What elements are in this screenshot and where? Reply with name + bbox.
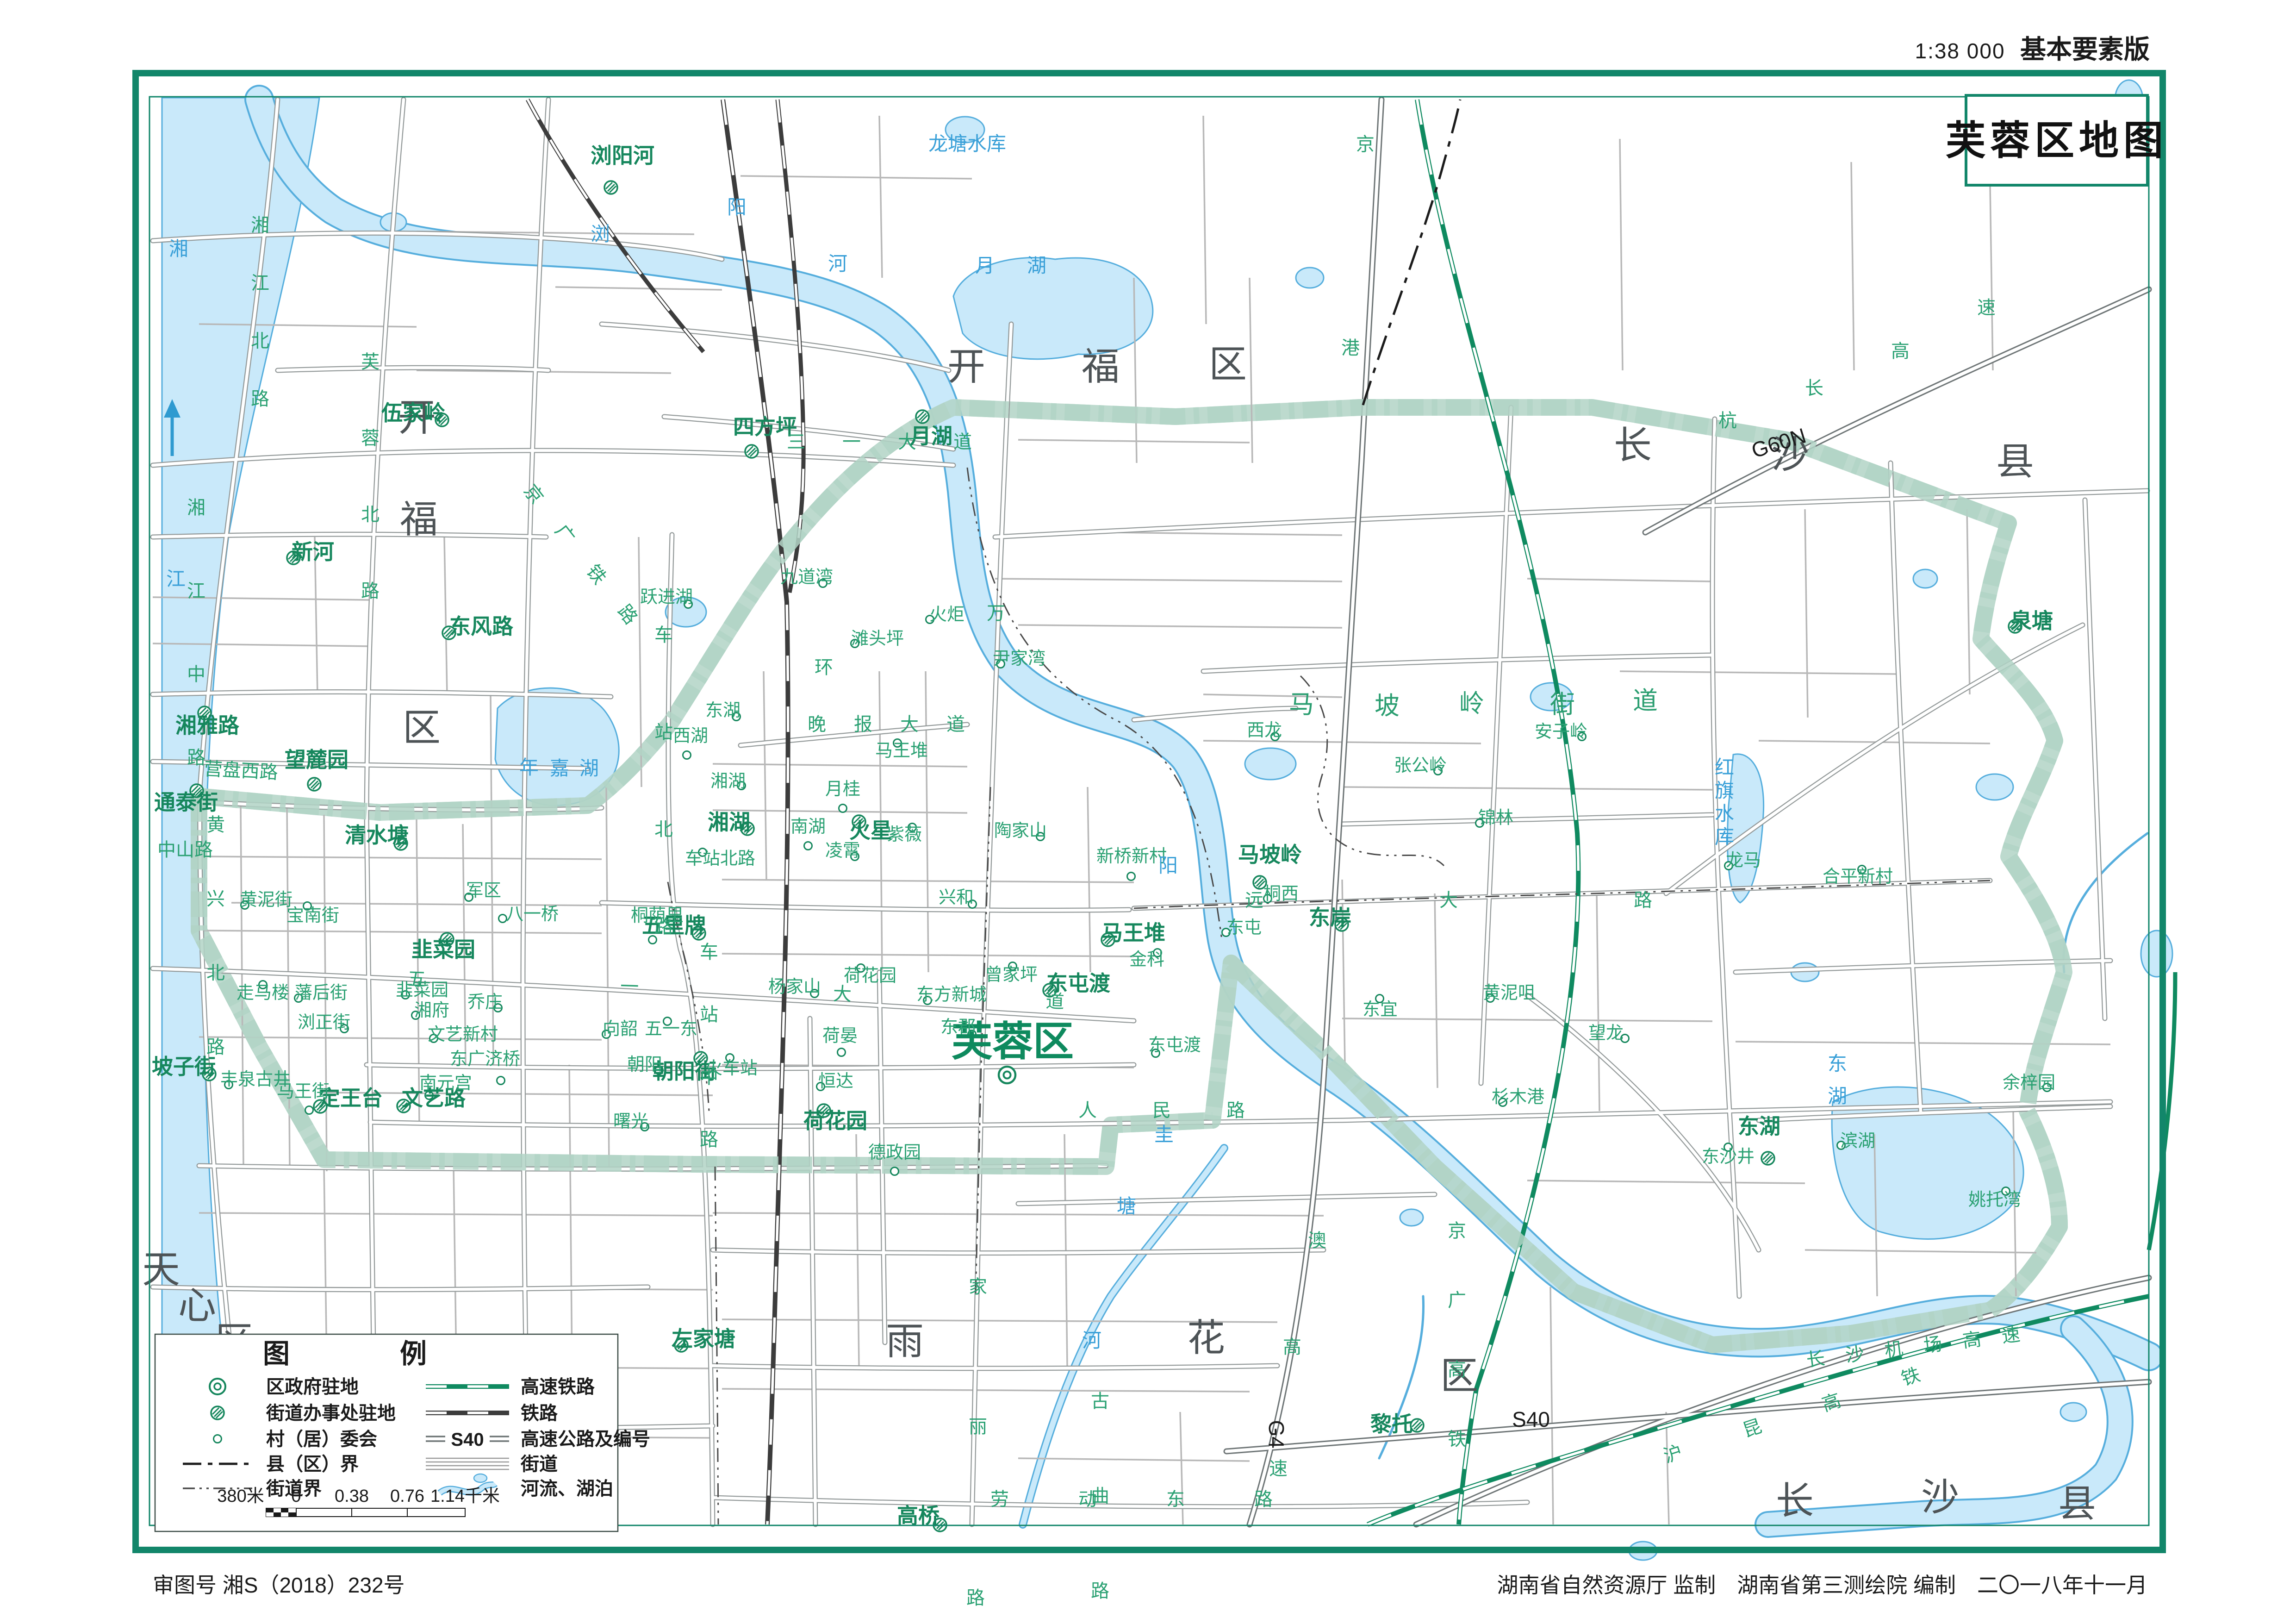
scalebar-label: 1.14千米 [430, 1487, 500, 1506]
map-label-vil: 西龙 [1247, 721, 1282, 740]
map-label-dist: 长 [1614, 425, 1654, 467]
map-label-dist: 开 [947, 346, 987, 388]
map-label-road: 五一大道 [407, 969, 1259, 1019]
map-label-water: 浏 [591, 223, 610, 245]
map-label-area: 岭 [1459, 690, 1484, 718]
map-label-dist: 花 [1187, 1317, 1227, 1359]
legend-item-label: 高速公路及编号 [521, 1429, 650, 1449]
map-label-dist: 县 [2058, 1483, 2098, 1525]
map-label-vil: 陶家山 [994, 821, 1047, 841]
map-label-vil: 军区 [466, 881, 501, 900]
map-label-road: 环 [815, 657, 833, 678]
village-committee-marker [839, 805, 847, 812]
map-label-vil: 马王街 [277, 1082, 330, 1101]
map-label-vil: 车站北路 [685, 849, 755, 868]
legend-item-label: 县（区）界 [266, 1454, 359, 1474]
map-label-road: 港 [1341, 338, 1360, 358]
map-label-vil: 八一桥 [506, 905, 559, 924]
map-title: 芙蓉区地图 [1946, 119, 2168, 163]
map-label-vil: 德政园 [868, 1143, 921, 1162]
district-government-marker [999, 1067, 1015, 1083]
map-label-sub: 荷花园 [803, 1109, 867, 1133]
map-label-vil: 向韶 [603, 1019, 638, 1039]
map-label-vil: 五一东 [645, 1019, 697, 1039]
map-label-vil: 浏正街 [298, 1013, 350, 1032]
map-label-vil: 湘府 [414, 1001, 449, 1020]
map-label-sub: 火星 [849, 818, 892, 843]
legend-item-label: 铁路 [521, 1403, 558, 1424]
map-label-road: 营盘西路 [204, 759, 279, 783]
village-committee-marker [1127, 873, 1135, 881]
title-box: 芙蓉区地图 [1946, 95, 2168, 185]
map-label-vil: 荷晏 [822, 1026, 858, 1046]
map-label-vil: 锦林 [1478, 808, 1513, 828]
map-label-dist: 福 [400, 499, 440, 541]
map-label-vil: 火炬 [929, 605, 964, 625]
map-label-vil: 黄泥咀 [1483, 983, 1536, 1003]
subdistrict-office-marker [604, 181, 617, 194]
village-committee-marker [804, 842, 812, 850]
map-label-road: 澳 [1308, 1230, 1326, 1251]
map-label-vil: 朝阳 [627, 1055, 662, 1074]
gov-seat-icon [210, 1379, 225, 1394]
map-label-vil: 东郡 [940, 1018, 976, 1037]
village-committee-icon [214, 1435, 222, 1443]
map-label-road: 长 [1805, 378, 1823, 399]
subdistrict-office-marker [308, 778, 321, 791]
legend-item-label: 村（居）委会 [266, 1429, 377, 1449]
map-label-water: 圭 [1154, 1124, 1174, 1145]
map-label-water: 湖 [1027, 255, 1046, 276]
legend-item-label: 区政府驻地 [266, 1377, 359, 1397]
map-label-sub: 左家塘 [672, 1327, 735, 1351]
map-label-road: 杭 [1718, 411, 1737, 431]
map-label-vil: 曾家坪 [985, 965, 1038, 985]
expressway-number: S40 [451, 1430, 484, 1450]
map-label-sub: 湘雅路 [175, 713, 240, 737]
map-label-sub: 马坡岭 [1238, 843, 1302, 867]
map-label-area: 马 [1289, 691, 1314, 718]
map-label-vil: 新桥新村 [1096, 847, 1167, 866]
map-label-area: 道 [1633, 687, 1658, 715]
edition-label: 基本要素版 [2020, 35, 2150, 64]
map-label-water: 东湖 [1828, 1053, 1847, 1107]
map-label-vil: 宝南街 [286, 906, 339, 925]
map-label-water: 阳 [1158, 855, 1178, 876]
map-label-vil: 安子岭 [1535, 722, 1587, 742]
map-label-vil: 荷花园 [844, 966, 896, 986]
legend-item-label: 河流、湖泊 [521, 1479, 613, 1499]
map-label-road: 速 [1269, 1459, 1288, 1479]
map-label-vil: 东湖 [705, 701, 740, 720]
scale-ratio: 1:38 000 [1915, 39, 2005, 63]
map-label-vil: 余梓园 [2003, 1073, 2055, 1093]
map-label-area: 坡 [1375, 692, 1400, 720]
map-label-road: 高 [1283, 1337, 1301, 1357]
map-label-road: 三一大道 [787, 432, 1009, 452]
subdistrict-office-marker [1761, 1152, 1774, 1165]
legend-item-label: 街道 [520, 1454, 558, 1474]
map-label-vil: 合平新村 [1823, 867, 1893, 887]
map-label-road: 晚报大道 [808, 714, 993, 735]
scalebar-label: 0 [291, 1487, 301, 1506]
map-label-vil: 张公岭 [1394, 756, 1447, 775]
map-label-sub: 新河 [292, 540, 334, 564]
map-label-hwy: G4 [1264, 1420, 1288, 1448]
map-label-sub: 通泰街 [154, 790, 218, 814]
map-label-water: 嘉 [550, 757, 569, 779]
village-committee-marker [683, 751, 691, 759]
village-committee-marker [891, 1168, 899, 1175]
map-label-sub: 马王堆 [1101, 921, 1165, 945]
map-label-sub: 湘湖 [708, 810, 750, 834]
map-label-vil: 姚托湾 [1968, 1190, 2021, 1210]
village-committee-marker [499, 915, 507, 923]
map-label-sub: 韭菜园 [411, 937, 475, 962]
map-label-road: 劳动东路 [990, 1489, 1342, 1510]
map-label-dist: 县 [1996, 441, 2036, 483]
map-label-road: 万 [987, 603, 1005, 624]
scalebar-label: 0.76 [390, 1487, 424, 1506]
map-label-vil: 曙光 [613, 1112, 648, 1131]
map-label-vil: 恒达 [818, 1072, 853, 1091]
map-label-vil: 尹家湾 [993, 649, 1045, 668]
map-label-vil: 南湖 [790, 817, 826, 837]
map-label-water: 湖 [579, 757, 599, 779]
map-label-sub: 泉塘 [2010, 609, 2053, 633]
map-label-vil: 兴和 [939, 888, 974, 907]
map-label-water: 龙塘水库 [928, 133, 1006, 155]
map-label-vil: 跃进湖 [640, 587, 693, 607]
map-label-road: 丽 [969, 1417, 987, 1437]
map-label-vil: 杉木港 [1492, 1087, 1544, 1107]
map-label-vil: 乔庄 [467, 993, 503, 1012]
map-label-road: 京广铁路 [520, 481, 661, 654]
map-label-vil: 紫薇 [887, 825, 922, 844]
map-label-road: 中山路 [157, 840, 213, 860]
map-label-vil: 东屯渡 [1148, 1036, 1201, 1055]
village-committee-marker [838, 1049, 846, 1056]
subdistrict-office-marker [745, 445, 758, 458]
scalebar-label: 0.38 [335, 1487, 369, 1506]
map-label-sub: 伍家岭 [381, 401, 445, 425]
expressway [1250, 100, 1381, 1524]
map-canvas: 开福区开福区长沙县长沙县天心区雨花区马坡岭街道芙蓉区四方坪浏阳河伍家岭新河东风路… [0, 0, 2296, 1624]
map-label-vil: 南元宫 [419, 1074, 472, 1093]
map-label-sub: 黎托 [1370, 1412, 1413, 1436]
scalebar-label: 380米 [217, 1487, 264, 1506]
header-scale-note: 1:38 000 基本要素版 [1915, 29, 2150, 66]
map-label-vil: 望龙 [1588, 1024, 1624, 1043]
footer-approval-number: 审图号 湘S（2018）232号 [153, 1568, 405, 1599]
map-label-road: 京广高铁 [1448, 1221, 1466, 1449]
map-label-vil: 东广济桥 [450, 1049, 520, 1069]
map-label-dist: 区 [403, 707, 442, 749]
village-committee-marker [305, 1106, 313, 1114]
map-label-vil: 湘湖 [710, 772, 746, 791]
map-label-vil: 东沙井 [1702, 1147, 1755, 1167]
map-label-road: 速 [1977, 298, 1996, 318]
map-label-vil: 九道湾 [780, 568, 833, 587]
map-label-vil: 马王堆 [875, 741, 928, 761]
map-label-vil: 黄泥街 [240, 890, 292, 910]
map-label-dist: 沙 [1921, 1476, 1961, 1518]
map-label-vil: 滩头坪 [851, 629, 904, 649]
expressway-fills [1226, 100, 2149, 1524]
map-label-dist: 心 [178, 1285, 218, 1327]
map-label-road: 人民路 [1078, 1100, 1300, 1121]
map-label-road: 远大路 [1245, 890, 1828, 911]
map-label-sub: 东风路 [449, 614, 514, 638]
map-label-vil: 藩后街 [295, 983, 348, 1003]
map-label-water: 塘 [1117, 1195, 1136, 1217]
map-label-vil: 东屯 [1226, 918, 1262, 937]
map-label-vil: 西湖 [673, 726, 708, 746]
map-label-dist: 天 [142, 1249, 182, 1291]
map-label-road: 京 [1356, 134, 1375, 155]
map-label-water: 湘 [169, 238, 188, 260]
legend-title: 图 例 [263, 1339, 468, 1369]
map-sheet: 开福区开福区长沙县长沙县天心区雨花区马坡岭街道芙蓉区四方坪浏阳河伍家岭新河东风路… [0, 0, 2296, 1624]
map-label-dist: 福 [1082, 346, 1121, 388]
map-label-dist: 雨 [886, 1320, 926, 1362]
map-label-vil: 走马楼 [236, 983, 289, 1003]
map-label-road: 家 [969, 1277, 987, 1297]
map-label-sub: 浏阳河 [591, 144, 654, 168]
map-label-sub: 东湖 [1738, 1114, 1780, 1138]
map-label-water: 河 [1082, 1330, 1101, 1351]
village-committee-marker [497, 1077, 505, 1085]
map-label-water: 阳 [727, 196, 747, 218]
map-label-sub: 清水塘 [345, 823, 409, 847]
legend-item-label: 街道办事处驻地 [266, 1403, 396, 1424]
map-label-vil: 滨湖 [1840, 1131, 1875, 1151]
map-label-road: 高 [1891, 341, 1910, 362]
map-label-dist: 长 [1776, 1480, 1816, 1522]
footer-credits: 湖南省自然资源厅 监制 湖南省第三测绘院 编制 二〇一八年十一月 [1497, 1568, 2147, 1599]
legend-item-label: 高速铁路 [521, 1377, 595, 1397]
map-label-area: 街 [1550, 691, 1575, 718]
map-label-water: 年 [519, 756, 539, 778]
map-label-sub: 高桥 [897, 1504, 940, 1528]
subdistrict-seat-icon [211, 1406, 224, 1419]
map-label-road: 古曲路 [1091, 1391, 1109, 1601]
subdistrict-office-marker [916, 410, 929, 423]
map-label-vil: 东宜 [1363, 1000, 1398, 1019]
map-label-water: 月 [975, 255, 995, 276]
map-label-road: 路 [966, 1588, 985, 1608]
map-label-dist: 区 [1209, 344, 1249, 386]
map-label-water: 河 [828, 253, 847, 275]
map-label-hwy: S40 [1512, 1407, 1550, 1431]
legend-box: 图 例 区政府驻地街道办事处驻地村（居）委会县（区）界街道界高速铁路铁路S40高… [155, 1334, 650, 1531]
map-label-vil: 凌霄 [825, 841, 860, 861]
map-label-vil: 金科 [1129, 950, 1164, 969]
map-label-water: 江 [166, 568, 186, 590]
map-label-vil: 文艺新村 [428, 1025, 498, 1044]
map-label-vil: 龙马 [1726, 851, 1761, 870]
map-label-sub: 望麓园 [285, 748, 348, 772]
map-label-vil: 月桂 [825, 780, 860, 799]
map-label-sub: 坡子街 [152, 1055, 216, 1079]
